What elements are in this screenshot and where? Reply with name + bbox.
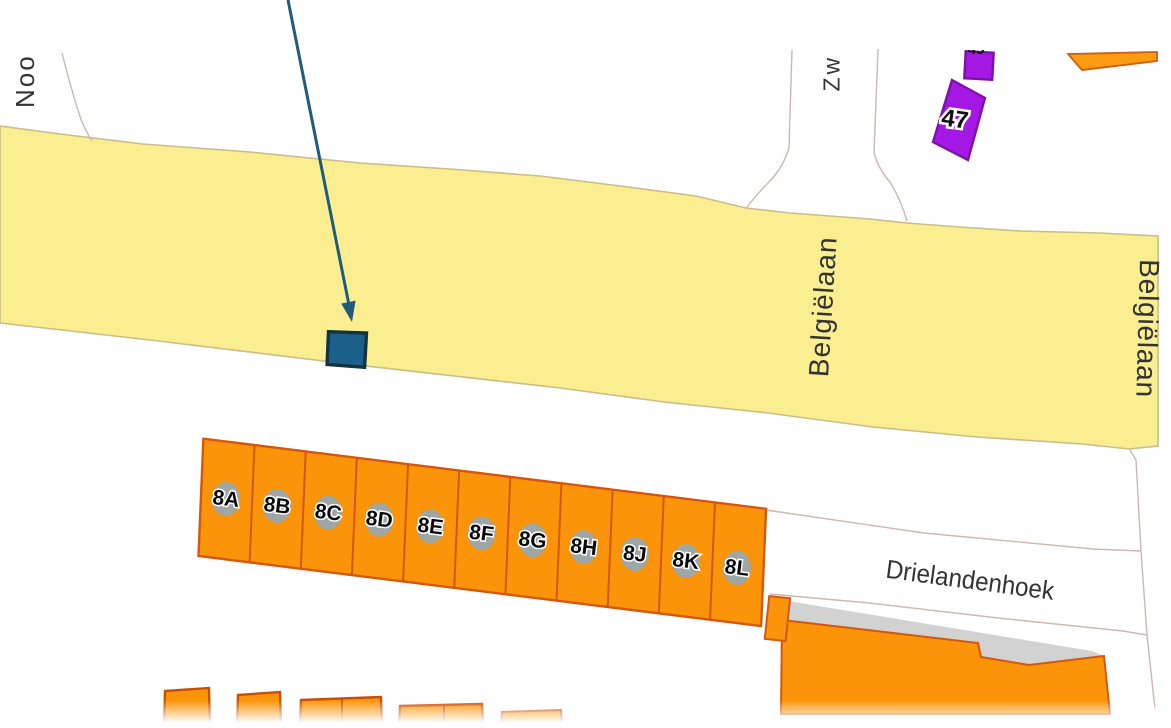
svg-text:Belgiëlaan: Belgiëlaan [1130,259,1165,399]
svg-text:8K: 8K [671,548,700,574]
svg-text:47: 47 [940,104,970,134]
svg-text:8C: 8C [313,500,342,526]
svg-text:8H: 8H [569,534,598,560]
svg-text:8B: 8B [262,493,291,519]
svg-text:8L: 8L [723,555,750,581]
svg-text:8G: 8G [517,527,548,553]
svg-text:8J: 8J [622,541,648,567]
svg-text:Noo: Noo [10,54,40,108]
svg-text:Zw: Zw [819,55,845,92]
svg-text:8F: 8F [468,521,495,547]
svg-text:8D: 8D [365,507,394,533]
svg-text:8A: 8A [211,486,240,512]
svg-text:8E: 8E [416,514,444,540]
